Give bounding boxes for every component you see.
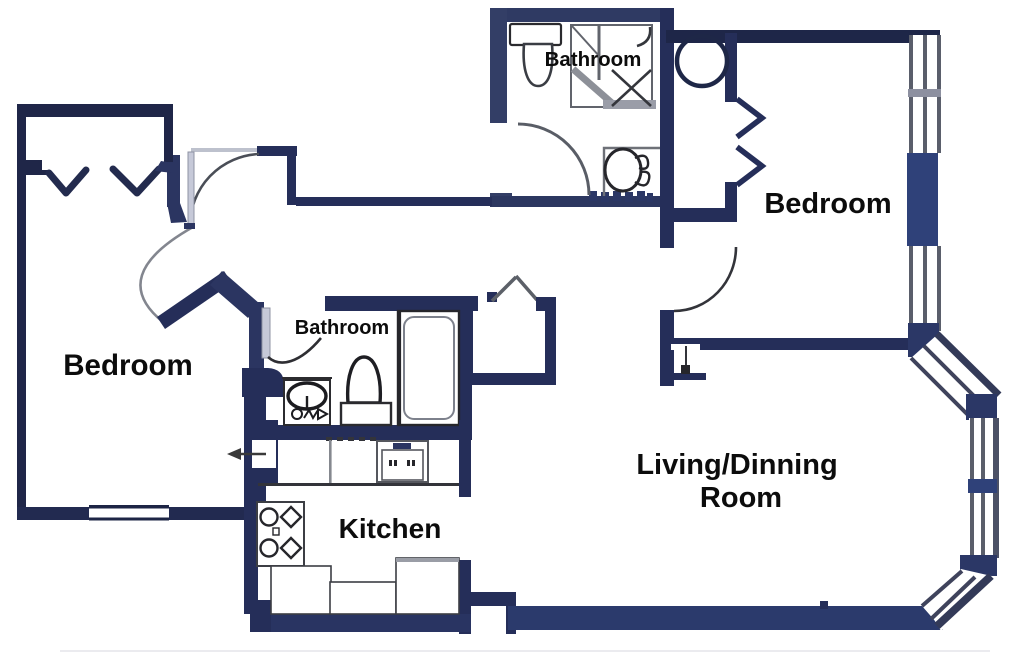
svg-text:Bathroom: Bathroom xyxy=(545,48,642,71)
svg-text:Room: Room xyxy=(700,482,782,514)
svg-text:Kitchen: Kitchen xyxy=(339,513,442,544)
svg-text:Bedroom: Bedroom xyxy=(764,188,891,220)
svg-text:Bedroom: Bedroom xyxy=(63,349,192,382)
svg-text:Bathroom: Bathroom xyxy=(295,317,389,339)
svg-text:Living/Dinning: Living/Dinning xyxy=(636,449,837,481)
